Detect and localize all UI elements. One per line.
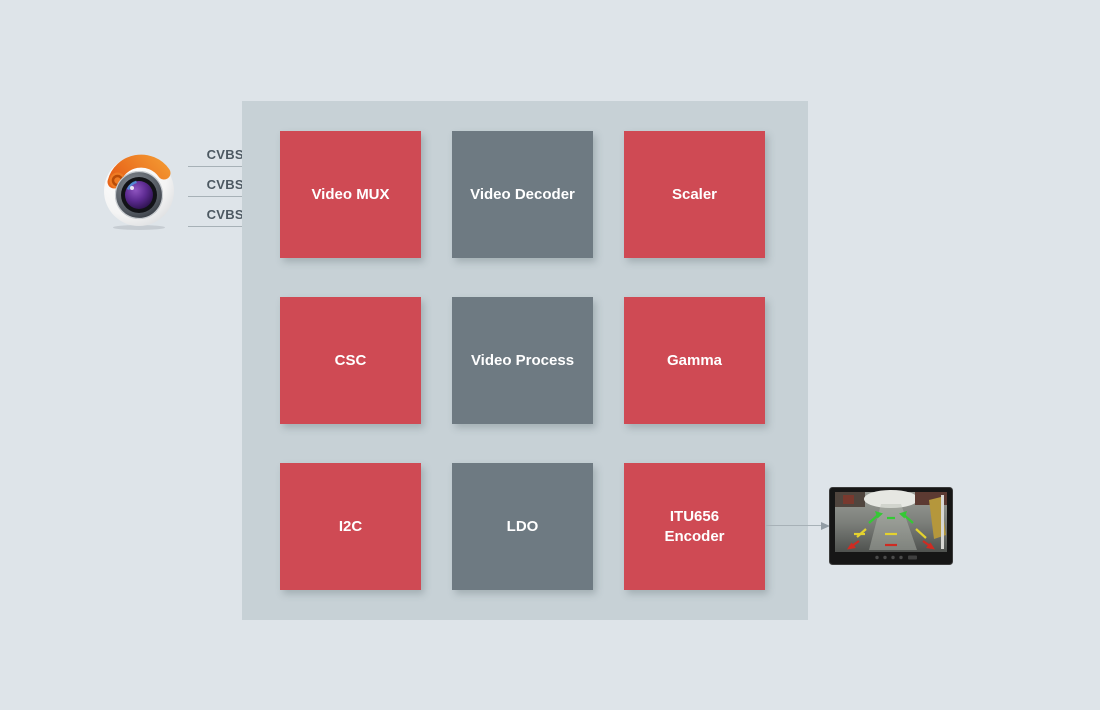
block-gamma: Gamma	[624, 297, 765, 424]
block-diagram: CVBS0 CVBS1 CVBS2 Video MUX Video Decode…	[0, 0, 1100, 710]
block-video-decoder: Video Decoder	[452, 131, 593, 258]
camera-icon	[101, 152, 177, 230]
monitor-icon-graphic	[829, 487, 953, 565]
output-arrow	[766, 525, 822, 526]
block-itu656-encoder: ITU656 Encoder	[624, 463, 765, 590]
monitor-icon	[829, 487, 953, 565]
block-video-process: Video Process	[452, 297, 593, 424]
block-ldo: LDO	[452, 463, 593, 590]
camera-icon-graphic	[101, 152, 177, 230]
block-scaler: Scaler	[624, 131, 765, 258]
block-i2c: I2C	[280, 463, 421, 590]
block-csc: CSC	[280, 297, 421, 424]
block-video-mux: Video MUX	[280, 131, 421, 258]
